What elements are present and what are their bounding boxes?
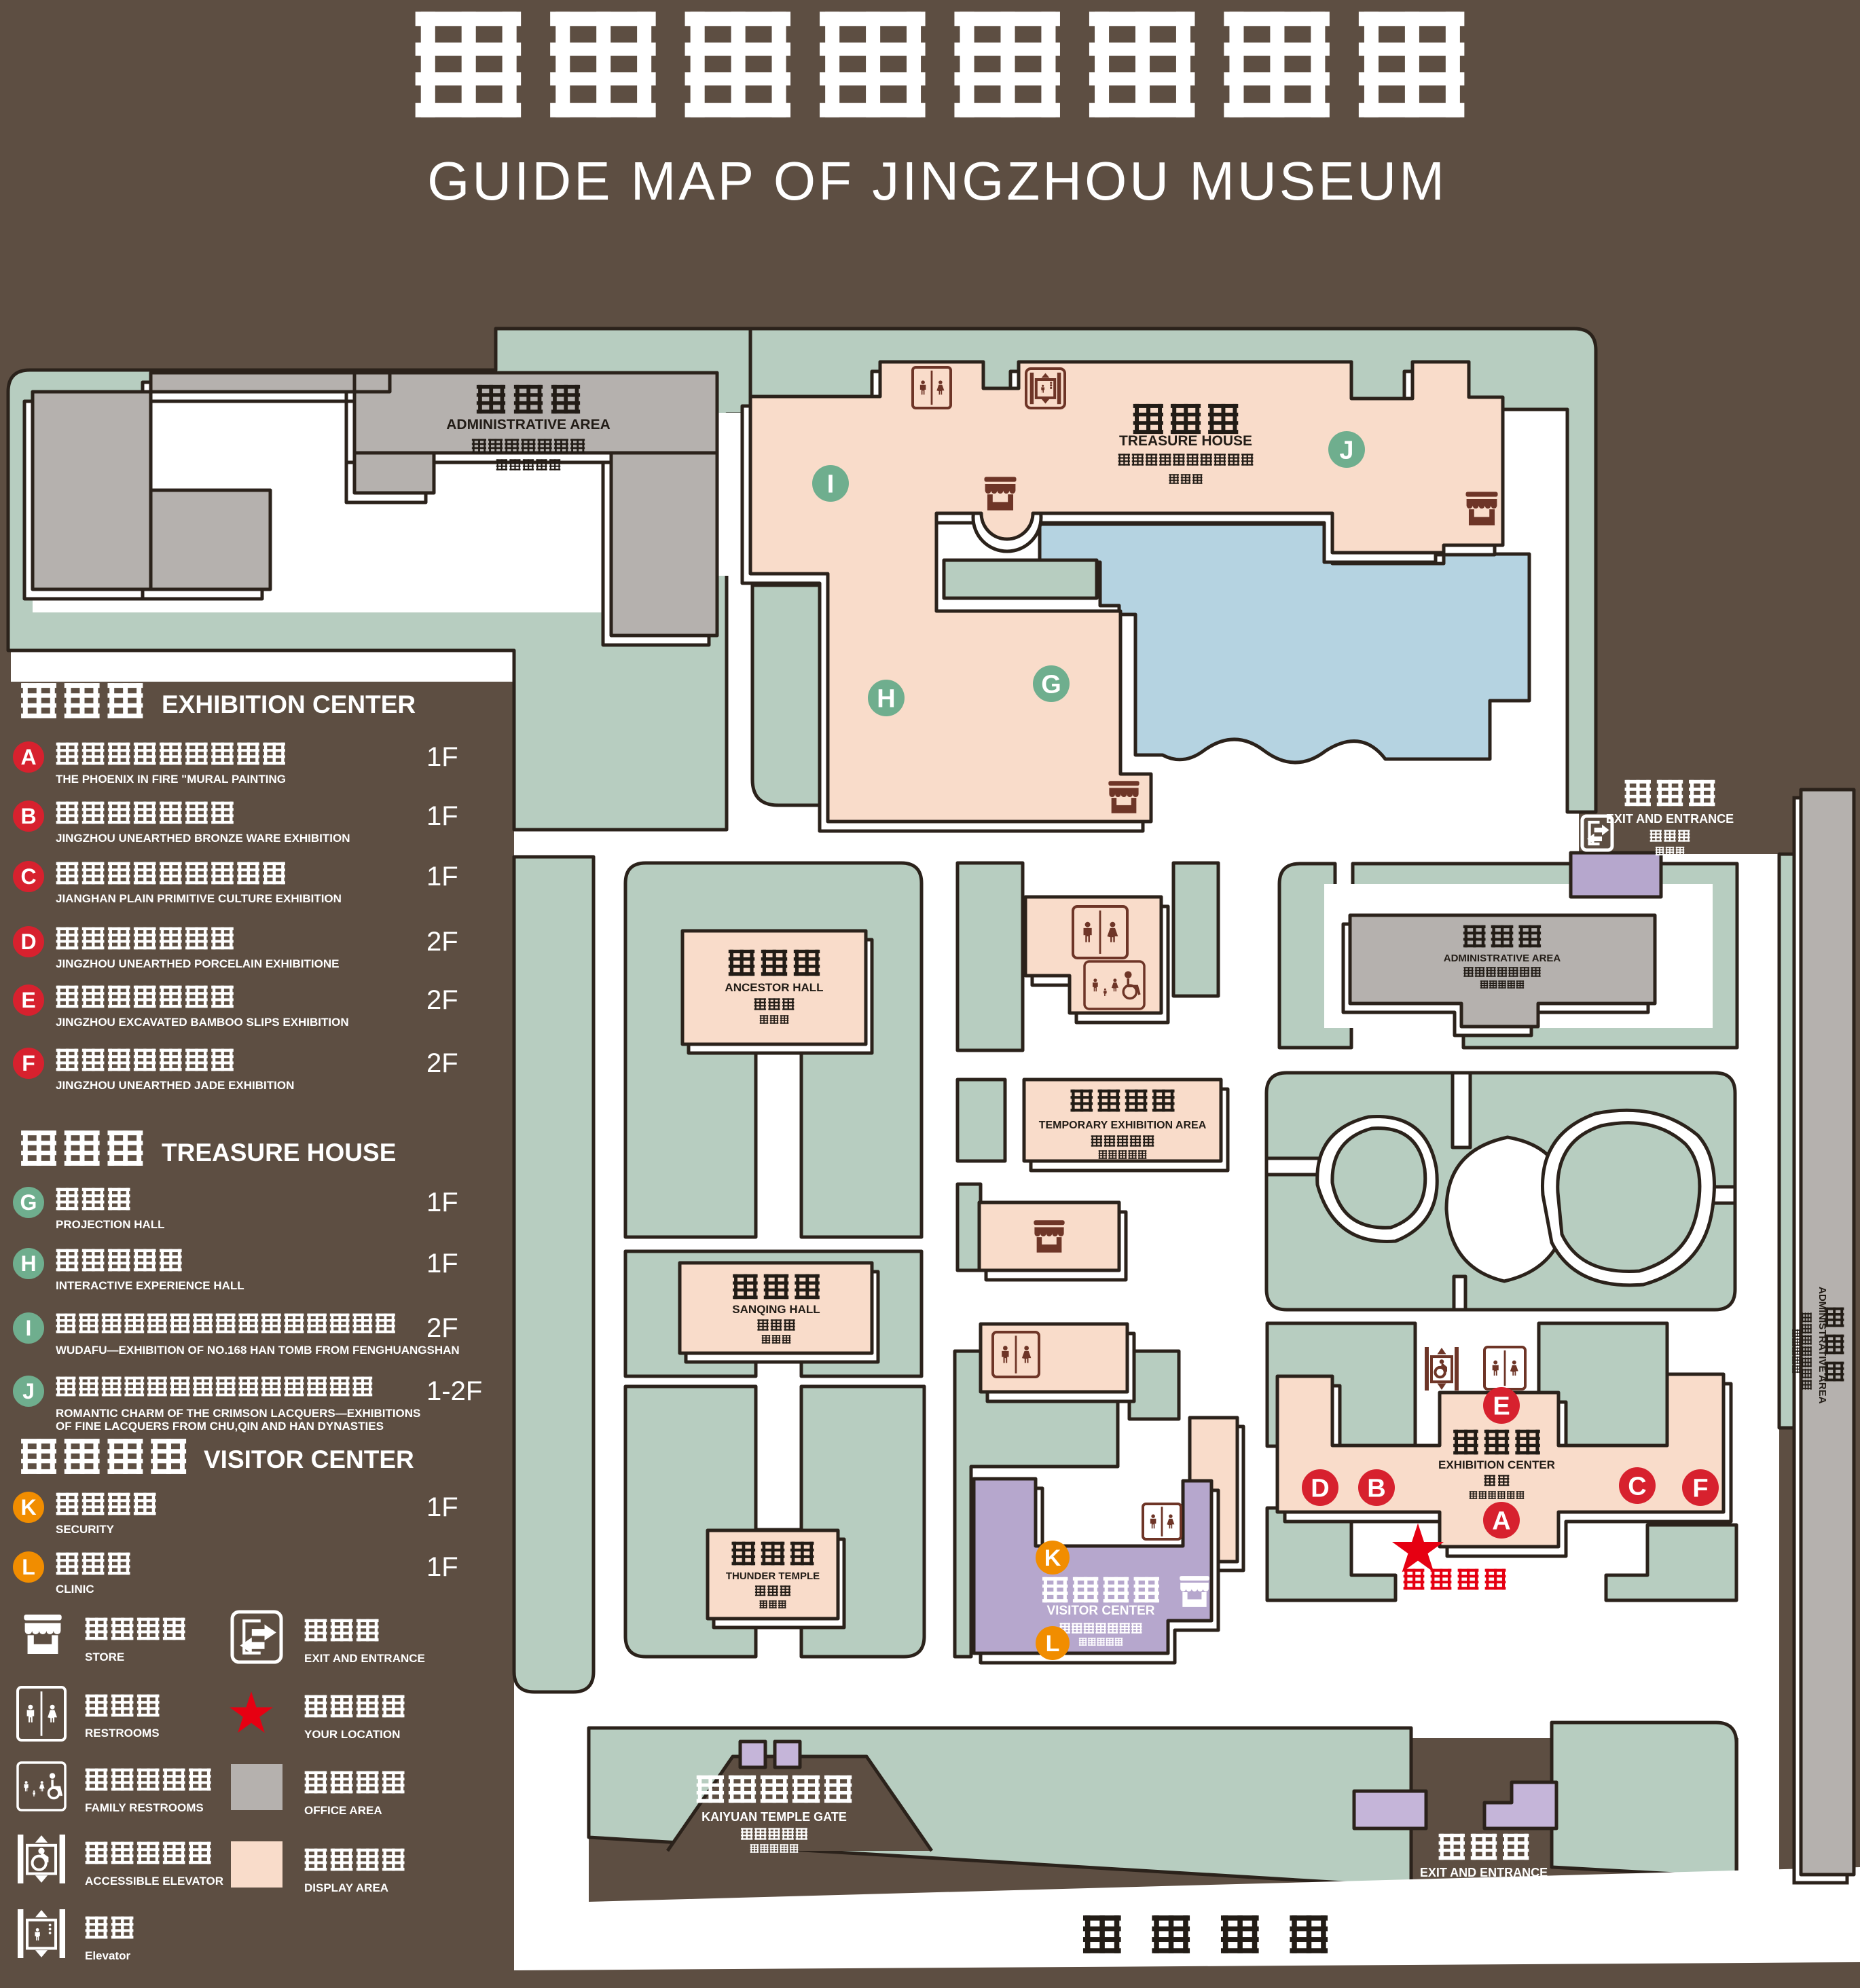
svg-text:GUIDE MAP OF JINGZHOU MUSEUM: GUIDE MAP OF JINGZHOU MUSEUM	[427, 151, 1447, 211]
svg-text:STORE: STORE	[85, 1651, 124, 1663]
svg-text:C: C	[20, 864, 36, 889]
svg-text:TREASURE HOUSE: TREASURE HOUSE	[162, 1139, 396, 1166]
svg-text:1F: 1F	[426, 1249, 458, 1278]
svg-text:YOUR LOCATION: YOUR LOCATION	[304, 1728, 400, 1741]
svg-text:ADMINISTRATIVE AREA: ADMINISTRATIVE AREA	[1817, 1287, 1828, 1404]
svg-text:JIANGHAN PLAIN PRIMITIVE CULTU: JIANGHAN PLAIN PRIMITIVE CULTURE EXHIBIT…	[56, 892, 342, 905]
svg-text:OF FINE LACQUERS FROM CHU,QIN: OF FINE LACQUERS FROM CHU,QIN AND HAN DY…	[56, 1420, 384, 1433]
svg-text:SANQING HALL: SANQING HALL	[732, 1303, 820, 1316]
svg-text:TEMPORARY EXHIBITION AREA: TEMPORARY EXHIBITION AREA	[1039, 1120, 1207, 1131]
svg-text:EXIT AND ENTRANCE: EXIT AND ENTRANCE	[1606, 812, 1734, 826]
svg-text:K: K	[20, 1495, 36, 1520]
svg-text:JINGZHOU UNEARTHED PORCELAIN E: JINGZHOU UNEARTHED PORCELAIN EXHIBITIONE	[56, 957, 339, 970]
svg-text:H: H	[877, 684, 895, 713]
svg-text:2F: 2F	[426, 1313, 458, 1343]
svg-text:B: B	[1367, 1474, 1385, 1503]
svg-text:KAIYUAN TEMPLE GATE: KAIYUAN TEMPLE GATE	[701, 1810, 847, 1824]
svg-text:D: D	[20, 929, 36, 954]
svg-text:VISITOR CENTER: VISITOR CENTER	[204, 1446, 414, 1473]
svg-text:ACCESSIBLE ELEVATOR: ACCESSIBLE ELEVATOR	[85, 1875, 223, 1888]
svg-text:FAMILY RESTROOMS: FAMILY RESTROOMS	[85, 1801, 204, 1814]
svg-text:B: B	[20, 804, 36, 828]
svg-text:I: I	[26, 1316, 32, 1340]
svg-text:VISITOR CENTER: VISITOR CENTER	[1046, 1604, 1154, 1618]
svg-text:E: E	[1493, 1392, 1510, 1420]
svg-text:DISPLAY AREA: DISPLAY AREA	[304, 1881, 388, 1894]
svg-text:THUNDER TEMPLE: THUNDER TEMPLE	[726, 1570, 820, 1582]
svg-text:2F: 2F	[426, 985, 458, 1015]
svg-text:J: J	[22, 1379, 35, 1403]
svg-text:EXIT AND ENTRANCE: EXIT AND ENTRANCE	[1420, 1866, 1548, 1879]
svg-text:2F: 2F	[426, 1048, 458, 1078]
svg-text:OFFICE AREA: OFFICE AREA	[304, 1804, 382, 1817]
svg-text:K: K	[1044, 1545, 1061, 1571]
svg-text:JINGZHOU EXCAVATED BAMBOO SLIP: JINGZHOU EXCAVATED BAMBOO SLIPS EXHIBITI…	[56, 1016, 349, 1029]
svg-text:Elevator: Elevator	[85, 1949, 130, 1962]
svg-text:G: G	[1041, 670, 1061, 699]
svg-text:TREASURE HOUSE: TREASURE HOUSE	[1119, 433, 1252, 449]
svg-text:1F: 1F	[426, 1492, 458, 1522]
svg-text:G: G	[20, 1190, 37, 1215]
svg-text:I: I	[827, 470, 835, 498]
svg-text:1F: 1F	[426, 1188, 458, 1217]
svg-text:2F: 2F	[426, 927, 458, 957]
svg-text:JINGZHOU UNEARTHED JADE EXHIBI: JINGZHOU UNEARTHED JADE EXHIBITION	[56, 1079, 294, 1092]
svg-text:D: D	[1311, 1474, 1329, 1503]
svg-text:A: A	[20, 745, 36, 769]
svg-text:L: L	[22, 1555, 35, 1579]
svg-text:EXIT AND ENTRANCE: EXIT AND ENTRANCE	[304, 1652, 425, 1665]
svg-text:1F: 1F	[426, 801, 458, 831]
svg-text:1-2F: 1-2F	[426, 1376, 482, 1406]
svg-text:C: C	[1628, 1472, 1646, 1501]
svg-text:INTERACTIVE EXPERIENCE HALL: INTERACTIVE EXPERIENCE HALL	[56, 1279, 244, 1292]
svg-text:ROMANTIC CHARM OF THE CRIMSON: ROMANTIC CHARM OF THE CRIMSON LACQUERS—E…	[56, 1407, 420, 1420]
svg-text:1F: 1F	[426, 1552, 458, 1582]
svg-text:J: J	[1339, 436, 1353, 464]
svg-text:ADMINISTRATIVE AREA: ADMINISTRATIVE AREA	[1444, 953, 1561, 964]
svg-text:SECURITY: SECURITY	[56, 1523, 115, 1536]
svg-text:L: L	[1046, 1631, 1060, 1657]
svg-text:1F: 1F	[426, 862, 458, 891]
svg-text:EXHIBITION CENTER: EXHIBITION CENTER	[1438, 1458, 1555, 1471]
svg-text:1F: 1F	[426, 742, 458, 772]
svg-text:F: F	[1692, 1474, 1708, 1503]
svg-text:EXHIBITION CENTER: EXHIBITION CENTER	[162, 691, 416, 718]
svg-text:JINGZHOU UNEARTHED BRONZE WARE: JINGZHOU UNEARTHED BRONZE WARE EXHIBITIO…	[56, 832, 350, 845]
svg-text:ADMINISTRATIVE AREA: ADMINISTRATIVE AREA	[446, 417, 610, 432]
svg-text:A: A	[1492, 1507, 1510, 1535]
svg-text:H: H	[20, 1251, 36, 1276]
svg-text:CLINIC: CLINIC	[56, 1583, 94, 1596]
svg-text:ANCESTOR HALL: ANCESTOR HALL	[725, 981, 823, 994]
svg-text:RESTROOMS: RESTROOMS	[85, 1727, 160, 1739]
svg-text:THE PHOENIX IN FIRE "MURAL PAI: THE PHOENIX IN FIRE "MURAL PAINTING	[56, 773, 286, 786]
svg-text:F: F	[22, 1051, 35, 1075]
svg-text:E: E	[21, 988, 35, 1012]
svg-text:WUDAFU—EXHIBITION OF NO.168 HA: WUDAFU—EXHIBITION OF NO.168 HAN TOMB FRO…	[56, 1344, 460, 1357]
svg-text:PROJECTION HALL: PROJECTION HALL	[56, 1218, 165, 1231]
